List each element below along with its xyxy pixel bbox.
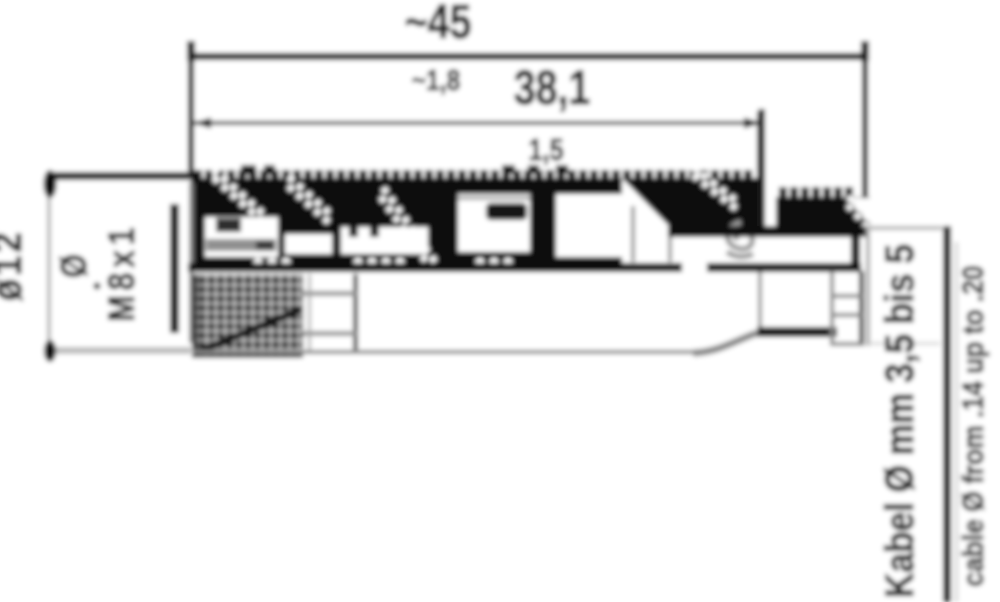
svg-text:1,5: 1,5 [528, 133, 563, 168]
svg-text:~45: ~45 [405, 0, 472, 49]
svg-text:~1,8: ~1,8 [412, 64, 461, 96]
svg-text:Kabel Ø mm 3,5 bis 5: Kabel Ø mm 3,5 bis 5 [877, 244, 922, 598]
svg-text:M8x1: M8x1 [102, 222, 143, 321]
svg-text:Ø: Ø [55, 254, 95, 278]
svg-text:cable Ø from .14 up to .20: cable Ø from .14 up to .20 [955, 265, 989, 586]
svg-text:38,1: 38,1 [514, 61, 591, 115]
svg-text:ø12: ø12 [0, 229, 31, 301]
